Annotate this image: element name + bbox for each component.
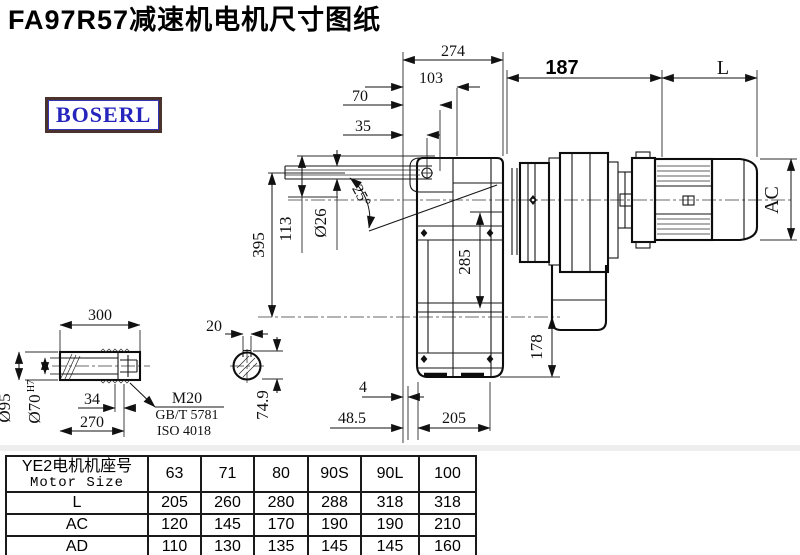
dim-178-label: 178 xyxy=(527,334,546,360)
motor-size-table: YE2电机机座号 Motor Size 63 71 80 90S 90L 100… xyxy=(5,455,477,555)
dim-285-label: 285 xyxy=(455,249,474,275)
dim-187-label: 187 xyxy=(545,57,578,79)
extension-lines xyxy=(25,52,797,443)
table-cell: 120 xyxy=(148,514,201,536)
thread-spec-label: M20 xyxy=(172,390,202,407)
dim-274-label: 274 xyxy=(441,43,465,60)
dim-74-9-label: 74.9 xyxy=(253,390,272,420)
dim-205-label: 205 xyxy=(442,410,466,427)
table-row-L: L 205 260 280 288 318 318 xyxy=(6,492,476,514)
r57-lower-case xyxy=(552,265,606,330)
dim-dia26-label: Ø26 xyxy=(311,208,330,237)
col-header-63: 63 xyxy=(148,456,201,492)
dim-70-label: 70 xyxy=(352,88,368,105)
table-cell: 260 xyxy=(201,492,254,514)
dim-L-label: L xyxy=(717,57,729,79)
table-cell: 145 xyxy=(308,536,361,555)
table-cell: 190 xyxy=(308,514,361,536)
col-header-80: 80 xyxy=(254,456,308,492)
table-header-row: YE2电机机座号 Motor Size 63 71 80 90S 90L 100 xyxy=(6,456,476,492)
table-cell: 170 xyxy=(254,514,308,536)
leader-line xyxy=(130,383,155,407)
col-header-71: 71 xyxy=(201,456,254,492)
dim-25deg-label: 25° xyxy=(348,182,374,210)
table-cell: 160 xyxy=(419,536,476,555)
dim-48-5-label: 48.5 xyxy=(338,410,366,427)
table-row-AD: AD 110 130 135 145 145 160 xyxy=(6,536,476,555)
table-cell: 318 xyxy=(361,492,419,514)
table-header-motor-size: YE2电机机座号 Motor Size xyxy=(6,456,148,492)
table-cell: 145 xyxy=(361,536,419,555)
dim-35-label: 35 xyxy=(355,118,371,135)
col-header-100: 100 xyxy=(419,456,476,492)
col-header-90S: 90S xyxy=(308,456,361,492)
row-label-AC: AC xyxy=(6,514,148,536)
drawing-page: FA97R57减速机电机尺寸图纸 BOSERL xyxy=(0,0,800,555)
dim-dia70-label: Ø70 xyxy=(25,394,44,423)
standard-gb-label: GB/T 5781 xyxy=(155,408,218,423)
table-cell: 135 xyxy=(254,536,308,555)
motor-size-label-en: Motor Size xyxy=(7,476,147,491)
table-cell: 130 xyxy=(201,536,254,555)
row-label-L: L xyxy=(6,492,148,514)
table-row-AC: AC 120 145 170 190 190 210 xyxy=(6,514,476,536)
table-cell: 210 xyxy=(419,514,476,536)
dim-AC-label: AC xyxy=(761,186,783,214)
table-cell: 318 xyxy=(419,492,476,514)
dim-20-label: 20 xyxy=(206,318,222,335)
fan-cowl xyxy=(712,159,757,240)
table-cell: 288 xyxy=(308,492,361,514)
col-header-90L: 90L xyxy=(361,456,419,492)
dim-270-label: 270 xyxy=(80,414,104,431)
table-cell: 145 xyxy=(201,514,254,536)
center-lines xyxy=(52,200,792,383)
r57-gear-unit xyxy=(512,153,618,330)
dimension-lines xyxy=(19,60,791,431)
table-cell: 190 xyxy=(361,514,419,536)
standard-iso-label: ISO 4018 xyxy=(157,424,211,439)
dim-103-label: 103 xyxy=(419,70,443,87)
dim-395-label: 395 xyxy=(249,232,268,258)
dimension-arrows-outside xyxy=(78,87,480,428)
bolt-mark xyxy=(487,355,494,363)
bolt-mark xyxy=(487,229,494,237)
table-cell: 110 xyxy=(148,536,201,555)
dim-300-label: 300 xyxy=(88,307,112,324)
row-label-AD: AD xyxy=(6,536,148,555)
dim-dia70-tolerance: H7 xyxy=(26,380,37,392)
table-cell: 280 xyxy=(254,492,308,514)
dim-4-label: 4 xyxy=(359,379,367,396)
dim-34-label: 34 xyxy=(84,391,100,408)
bolt-mark xyxy=(421,355,428,363)
dim-dia95-label: Ø95 xyxy=(0,393,14,422)
motor-size-label-cn: YE2电机机座号 xyxy=(7,458,147,476)
bolt-mark xyxy=(421,229,428,237)
table-cell: 205 xyxy=(148,492,201,514)
dim-113-label: 113 xyxy=(276,217,295,242)
